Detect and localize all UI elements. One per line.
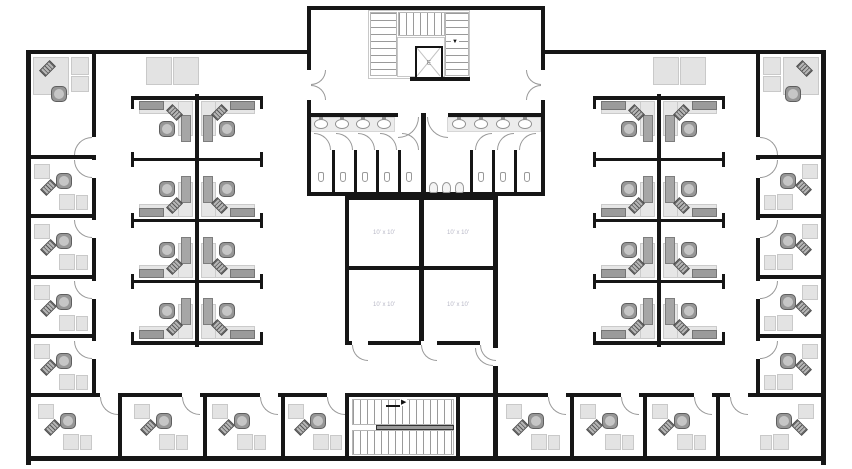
wall xyxy=(31,155,92,159)
office-chair xyxy=(159,303,175,319)
urinal xyxy=(455,182,464,193)
cubicle-desk-return xyxy=(139,208,164,217)
keyboard-tray xyxy=(140,419,157,436)
stall-door-arc xyxy=(497,133,514,150)
room-size-label: 10' x 10' xyxy=(447,230,469,236)
sink xyxy=(335,119,349,129)
stair-arrow-stem xyxy=(386,405,400,407)
keyboard-tray xyxy=(40,239,57,256)
desk-return xyxy=(764,375,776,390)
restroom-door-arc xyxy=(427,117,448,138)
cubicle-storage-bin xyxy=(203,115,213,142)
sink xyxy=(356,119,370,129)
elevator: E xyxy=(415,46,443,79)
office-chair xyxy=(621,242,637,258)
urinal xyxy=(442,182,451,193)
keyboard-tray xyxy=(294,419,311,436)
desk-return xyxy=(694,435,706,450)
wall xyxy=(281,393,285,456)
corner-office-workstation xyxy=(31,56,93,126)
file-cabinet xyxy=(802,285,818,300)
cubicle-desk-return xyxy=(230,101,255,110)
office-workstation xyxy=(760,404,814,452)
stall-partition xyxy=(376,150,379,192)
cubicle xyxy=(600,100,657,157)
sink xyxy=(474,119,488,129)
cubicle-storage-bin xyxy=(181,176,191,203)
stall-door-arc xyxy=(336,133,353,150)
desk-return xyxy=(764,255,776,270)
wall xyxy=(31,214,92,218)
sink xyxy=(314,119,328,129)
office-chair xyxy=(219,121,235,137)
cubicle xyxy=(138,283,195,340)
desk-return xyxy=(764,195,776,210)
office-chair xyxy=(674,413,690,429)
wall xyxy=(118,393,122,456)
stair-direction-arrow: ▼ xyxy=(451,39,459,45)
office-chair xyxy=(780,353,796,369)
wall xyxy=(541,6,545,70)
office-chair xyxy=(621,121,637,137)
wall xyxy=(716,393,720,456)
cubicle-desk-return xyxy=(139,269,164,278)
keyboard-tray xyxy=(44,419,61,436)
file-cabinet xyxy=(763,76,781,92)
office-workstation xyxy=(212,404,266,452)
cubicle-desk-return xyxy=(139,101,164,110)
double-door-leaf xyxy=(526,85,541,100)
desk-return xyxy=(313,434,329,450)
cubicle xyxy=(199,161,256,218)
wall xyxy=(203,393,207,456)
stair-treads xyxy=(370,12,397,76)
sink xyxy=(377,119,391,129)
cubicle-desk-return xyxy=(601,269,626,278)
stair-landing-rail xyxy=(376,425,454,430)
office-workstation xyxy=(34,344,88,392)
toilet xyxy=(340,172,346,182)
desk-return xyxy=(59,254,75,270)
stall-door-arc xyxy=(402,133,419,150)
wall xyxy=(345,196,349,345)
panel-cap xyxy=(722,213,725,228)
keyboard-tray xyxy=(512,419,529,436)
cubicle-desk-return xyxy=(139,330,164,339)
sink xyxy=(496,119,510,129)
file-cabinet xyxy=(506,404,522,419)
desk-return xyxy=(237,434,253,450)
file-cabinet xyxy=(34,285,50,300)
file-cabinet xyxy=(34,344,50,359)
desk-return xyxy=(59,315,75,331)
wall xyxy=(456,393,460,456)
toilet xyxy=(524,172,530,182)
panel-cap xyxy=(722,96,725,109)
storage-cabinet xyxy=(173,57,199,85)
panel-cap xyxy=(131,152,134,167)
cubicle xyxy=(199,222,256,279)
wall xyxy=(307,6,311,70)
office-chair xyxy=(780,173,796,189)
file-cabinet xyxy=(802,224,818,239)
keyboard-tray xyxy=(586,419,603,436)
wall xyxy=(31,275,92,279)
wall xyxy=(200,393,260,397)
toilet xyxy=(406,172,412,182)
desk-return xyxy=(531,434,547,450)
office-chair xyxy=(780,294,796,310)
office-chair xyxy=(56,173,72,189)
office-chair xyxy=(219,303,235,319)
keyboard-tray xyxy=(40,359,57,376)
keyboard-tray xyxy=(795,359,812,376)
toilet xyxy=(318,172,324,182)
panel-cap xyxy=(722,152,725,167)
keyboard-tray xyxy=(40,179,57,196)
cubicle-storage-bin xyxy=(665,176,675,203)
cubicle-storage-bin xyxy=(643,298,653,325)
cubicle xyxy=(138,100,195,157)
panel-cap xyxy=(722,274,725,289)
cubicle xyxy=(661,283,718,340)
toilet xyxy=(362,172,368,182)
panel-cap xyxy=(593,332,596,345)
wall xyxy=(26,456,826,461)
wall xyxy=(760,155,821,159)
panel-cap xyxy=(260,274,263,289)
keyboard-tray xyxy=(795,179,812,196)
cubicle-desk-return xyxy=(692,208,717,217)
desk-return xyxy=(76,375,88,390)
file-cabinet xyxy=(802,164,818,179)
office-chair xyxy=(681,242,697,258)
office-chair xyxy=(602,413,618,429)
desk-return xyxy=(777,315,793,331)
panel-cap xyxy=(722,332,725,345)
office-chair xyxy=(159,242,175,258)
office-chair xyxy=(60,413,76,429)
wall xyxy=(92,359,96,393)
wall xyxy=(345,341,352,345)
wall xyxy=(821,50,826,465)
desk-return xyxy=(330,435,342,450)
wall xyxy=(760,334,821,338)
panel-cap xyxy=(260,213,263,228)
double-door-leaf xyxy=(311,70,326,85)
cubicle-desk-return xyxy=(692,269,717,278)
office-workstation xyxy=(134,404,188,452)
wall xyxy=(122,393,182,397)
wall xyxy=(92,155,96,160)
file-cabinet xyxy=(38,404,54,419)
corridor-door-arc xyxy=(475,348,493,366)
cubicle-storage-bin xyxy=(665,298,675,325)
wall xyxy=(421,113,426,196)
sink xyxy=(452,119,466,129)
office-chair xyxy=(159,181,175,197)
cubicle-storage-bin xyxy=(203,176,213,203)
stall-door-arc xyxy=(519,133,536,150)
file-cabinet xyxy=(212,404,228,419)
desk-return xyxy=(777,194,793,210)
keyboard-tray xyxy=(40,300,57,317)
keyboard-tray xyxy=(795,239,812,256)
wall xyxy=(92,299,96,341)
corner-office-workstation xyxy=(759,56,821,126)
wall xyxy=(748,393,822,397)
storage-cabinet xyxy=(146,57,172,85)
cubicle xyxy=(661,161,718,218)
office-workstation xyxy=(764,164,818,212)
urinal xyxy=(429,182,438,193)
panel-cap xyxy=(593,213,596,228)
office-workstation xyxy=(506,404,560,452)
cubicle xyxy=(600,283,657,340)
file-cabinet xyxy=(71,57,89,75)
stair-treads xyxy=(352,430,454,455)
wall xyxy=(345,393,460,397)
elevator-label: E xyxy=(427,59,431,66)
storage-cabinet xyxy=(680,57,706,85)
wall xyxy=(31,334,92,338)
office-chair xyxy=(785,86,801,102)
office-workstation xyxy=(34,285,88,333)
desk-return xyxy=(63,434,79,450)
desk-return xyxy=(176,435,188,450)
file-cabinet xyxy=(798,404,814,419)
desk-return xyxy=(159,434,175,450)
desk-return xyxy=(548,435,560,450)
office-chair xyxy=(528,413,544,429)
stall-door-arc xyxy=(314,133,331,150)
room-door-arc xyxy=(352,345,368,361)
wall xyxy=(460,393,548,397)
office-workstation xyxy=(580,404,634,452)
office-workstation xyxy=(764,285,818,333)
office-workstation xyxy=(34,164,88,212)
office-chair xyxy=(159,121,175,137)
office-chair xyxy=(219,181,235,197)
office-chair xyxy=(234,413,250,429)
office-chair xyxy=(621,181,637,197)
double-door-leaf xyxy=(526,70,541,85)
sink xyxy=(518,119,532,129)
stall-partition xyxy=(332,150,335,192)
desk-return xyxy=(76,255,88,270)
desk-return xyxy=(773,434,789,450)
file-cabinet xyxy=(802,344,818,359)
wall xyxy=(493,196,498,345)
cubicle-storage-bin xyxy=(643,115,653,142)
cubicle xyxy=(138,222,195,279)
wall xyxy=(541,50,826,54)
office-chair xyxy=(681,303,697,319)
office-chair xyxy=(681,181,697,197)
keyboard-tray xyxy=(218,419,235,436)
office-workstation xyxy=(34,224,88,272)
cubicle xyxy=(138,161,195,218)
cubicle-desk-return xyxy=(692,101,717,110)
office-chair xyxy=(780,233,796,249)
stair-treads xyxy=(398,12,445,36)
toilet xyxy=(478,172,484,182)
office-workstation xyxy=(652,404,706,452)
office-chair xyxy=(219,242,235,258)
wall xyxy=(712,393,730,397)
cubicle-storage-bin xyxy=(665,115,675,142)
cubicle xyxy=(600,161,657,218)
panel-cap xyxy=(593,96,596,109)
wall xyxy=(541,100,545,196)
cubicle-desk-return xyxy=(692,330,717,339)
desk-return xyxy=(59,194,75,210)
desk-return xyxy=(254,435,266,450)
wall xyxy=(437,341,480,345)
office-chair xyxy=(621,303,637,319)
stall-partition xyxy=(354,150,357,192)
wall xyxy=(643,393,647,456)
cubicle-desk-return xyxy=(601,330,626,339)
wall xyxy=(26,393,100,397)
office-door-arc xyxy=(100,397,118,415)
wall xyxy=(26,50,311,54)
toilet xyxy=(384,172,390,182)
office-chair xyxy=(51,86,67,102)
keyboard-tray xyxy=(795,300,812,317)
wall xyxy=(493,366,498,456)
cubicle-desk-return xyxy=(230,208,255,217)
office-chair xyxy=(56,233,72,249)
panel-cap xyxy=(260,332,263,345)
desk-return xyxy=(677,434,693,450)
panel-cap xyxy=(593,274,596,289)
office-floor-plan: E ▼ 10' x 10' 10' x 10' xyxy=(0,0,852,469)
file-cabinet xyxy=(580,404,596,419)
cubicle-desk-return xyxy=(230,330,255,339)
cubicle-storage-bin xyxy=(181,298,191,325)
desk-return xyxy=(760,435,772,450)
file-cabinet xyxy=(34,164,50,179)
wall xyxy=(570,393,574,456)
cubicle-desk-return xyxy=(230,269,255,278)
office-chair xyxy=(56,294,72,310)
double-door-leaf xyxy=(311,85,326,100)
panel-cap xyxy=(131,332,134,345)
office-chair xyxy=(56,353,72,369)
office-workstation xyxy=(764,344,818,392)
stall-partition xyxy=(514,150,517,192)
office-door-arc xyxy=(74,137,92,155)
wall xyxy=(419,200,424,341)
room-size-label: 10' x 10' xyxy=(373,302,395,308)
stall-partition xyxy=(492,150,495,192)
file-cabinet xyxy=(71,76,89,92)
panel-cap xyxy=(131,213,134,228)
stall-partition xyxy=(470,150,473,192)
file-cabinet xyxy=(34,224,50,239)
stall-door-arc xyxy=(358,133,375,150)
cubicle-desk-return xyxy=(601,101,626,110)
cubicle-storage-bin xyxy=(665,237,675,264)
wall xyxy=(345,393,349,456)
cubicle xyxy=(661,100,718,157)
file-cabinet xyxy=(763,57,781,75)
wall xyxy=(760,214,821,218)
desk-return xyxy=(764,316,776,331)
wall xyxy=(493,345,498,348)
file-cabinet xyxy=(652,404,668,419)
file-cabinet xyxy=(134,404,150,419)
wall xyxy=(368,341,421,345)
desk-return xyxy=(622,435,634,450)
cubicle-storage-bin xyxy=(643,176,653,203)
desk-return xyxy=(777,254,793,270)
cubicle-storage-bin xyxy=(181,115,191,142)
panel-cap xyxy=(260,152,263,167)
keyboard-tray xyxy=(791,419,808,436)
stall-door-arc xyxy=(380,133,397,150)
desk-return xyxy=(76,195,88,210)
office-chair xyxy=(681,121,697,137)
desk-return xyxy=(76,316,88,331)
cubicle xyxy=(199,100,256,157)
panel-cap xyxy=(260,96,263,109)
office-door-arc xyxy=(760,137,778,155)
stall-partition xyxy=(398,150,401,192)
cubicle-desk-return xyxy=(601,208,626,217)
desk-return xyxy=(80,435,92,450)
wall xyxy=(278,393,327,397)
stair-direction-arrow: ▶ xyxy=(400,399,407,406)
cubicle-storage-bin xyxy=(643,237,653,264)
wall xyxy=(756,359,760,393)
cubicle-storage-bin xyxy=(203,237,213,264)
toilet xyxy=(500,172,506,182)
wall xyxy=(639,393,694,397)
cubicle-storage-bin xyxy=(203,298,213,325)
panel-cap xyxy=(593,152,596,167)
desk-return xyxy=(605,434,621,450)
panel-cap xyxy=(131,274,134,289)
room-size-label: 10' x 10' xyxy=(447,302,469,308)
panel-cap xyxy=(131,96,134,109)
stall-door-arc xyxy=(475,133,492,150)
wall xyxy=(760,275,821,279)
cubicle-storage-bin xyxy=(181,237,191,264)
room-size-label: 10' x 10' xyxy=(373,230,395,236)
wall xyxy=(566,393,621,397)
office-chair xyxy=(776,413,792,429)
office-chair xyxy=(156,413,172,429)
office-workstation xyxy=(288,404,342,452)
cubicle xyxy=(661,222,718,279)
wall xyxy=(92,178,96,220)
cubicle xyxy=(600,222,657,279)
room-door-arc xyxy=(421,345,437,361)
office-workstation xyxy=(764,224,818,272)
desk-return xyxy=(59,374,75,390)
keyboard-tray xyxy=(658,419,675,436)
office-chair xyxy=(310,413,326,429)
file-cabinet xyxy=(288,404,304,419)
storage-cabinet xyxy=(653,57,679,85)
office-workstation xyxy=(38,404,92,452)
wall xyxy=(92,238,96,281)
office-door-arc xyxy=(730,397,748,415)
cubicle xyxy=(199,283,256,340)
desk-return xyxy=(777,374,793,390)
